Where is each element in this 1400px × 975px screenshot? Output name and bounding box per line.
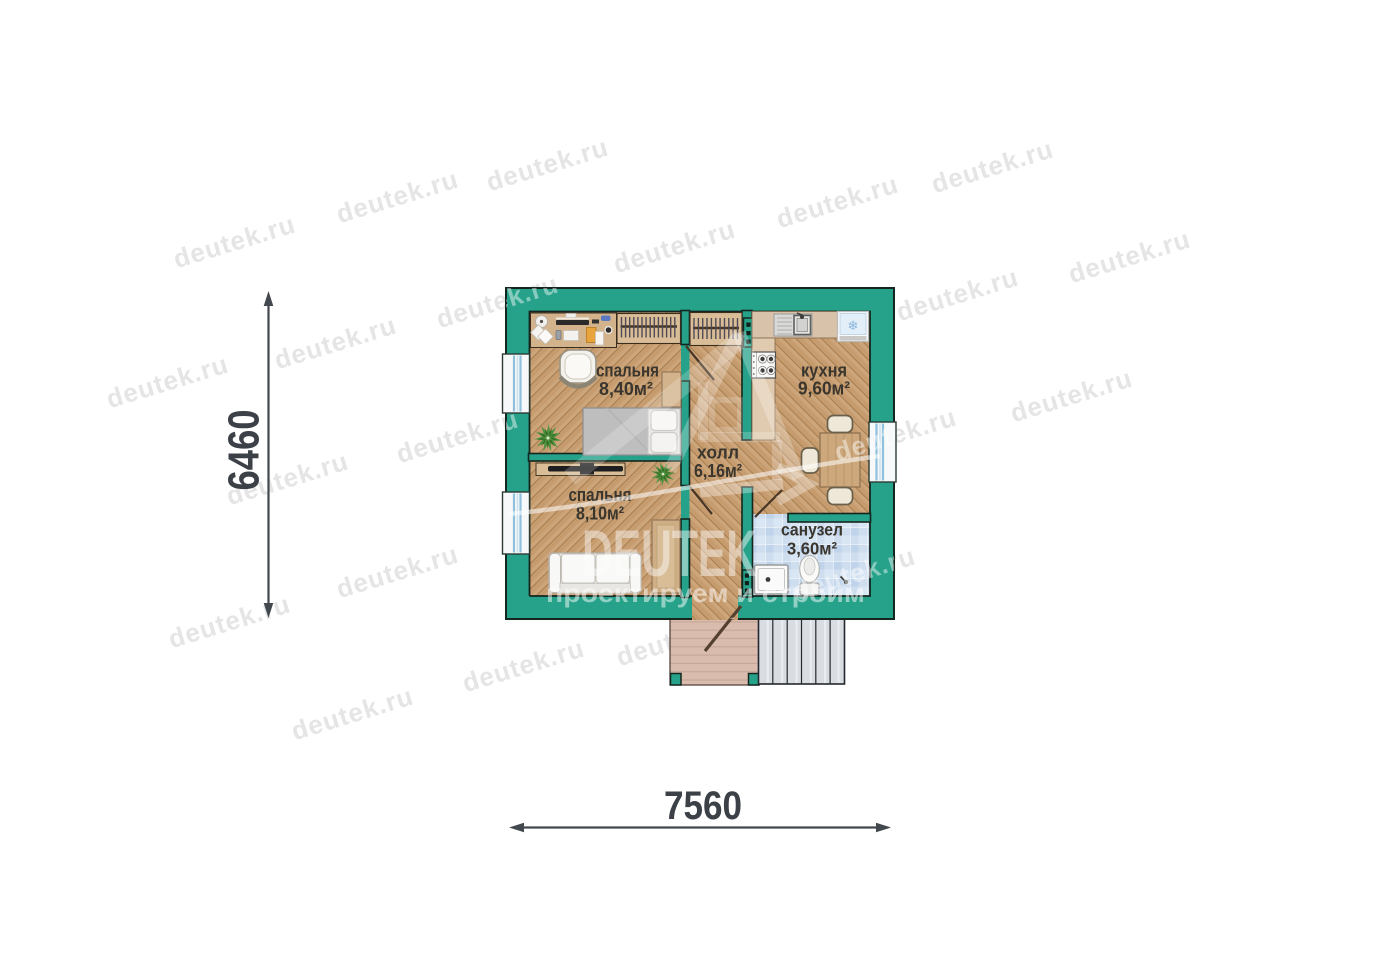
svg-text:❄: ❄ [848, 318, 859, 333]
svg-text:9,60м²: 9,60м² [798, 378, 850, 399]
svg-text:3,60м²: 3,60м² [787, 539, 837, 559]
svg-text:7560: 7560 [664, 784, 742, 828]
svg-text:8,40м²: 8,40м² [599, 378, 653, 399]
svg-text:6460: 6460 [220, 410, 269, 491]
svg-text:санузел: санузел [781, 520, 843, 540]
